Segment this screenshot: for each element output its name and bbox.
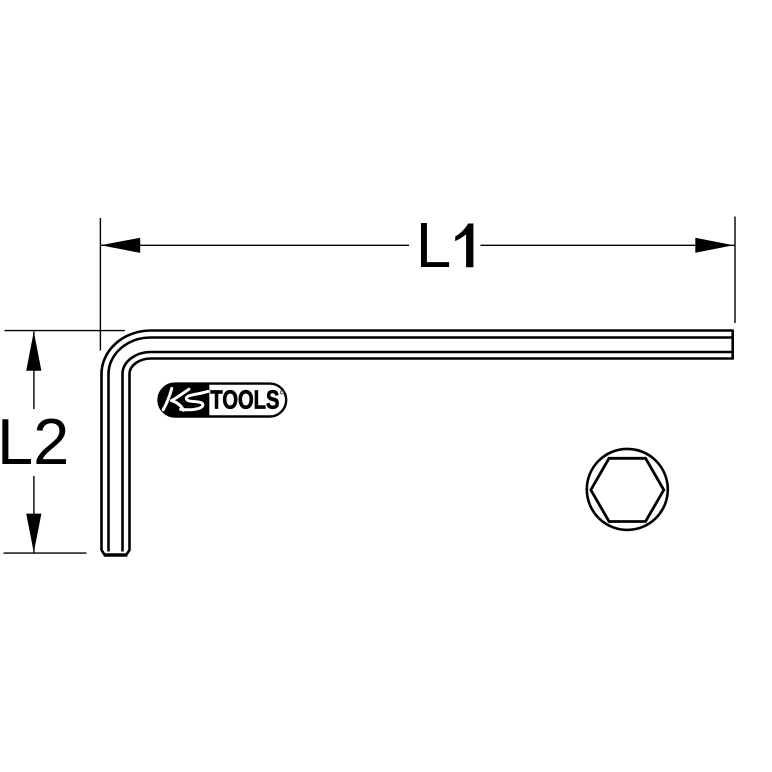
svg-text:TOOLS: TOOLS: [210, 385, 279, 415]
svg-text:L2: L2: [0, 405, 69, 478]
svg-text:L: L: [416, 209, 451, 281]
